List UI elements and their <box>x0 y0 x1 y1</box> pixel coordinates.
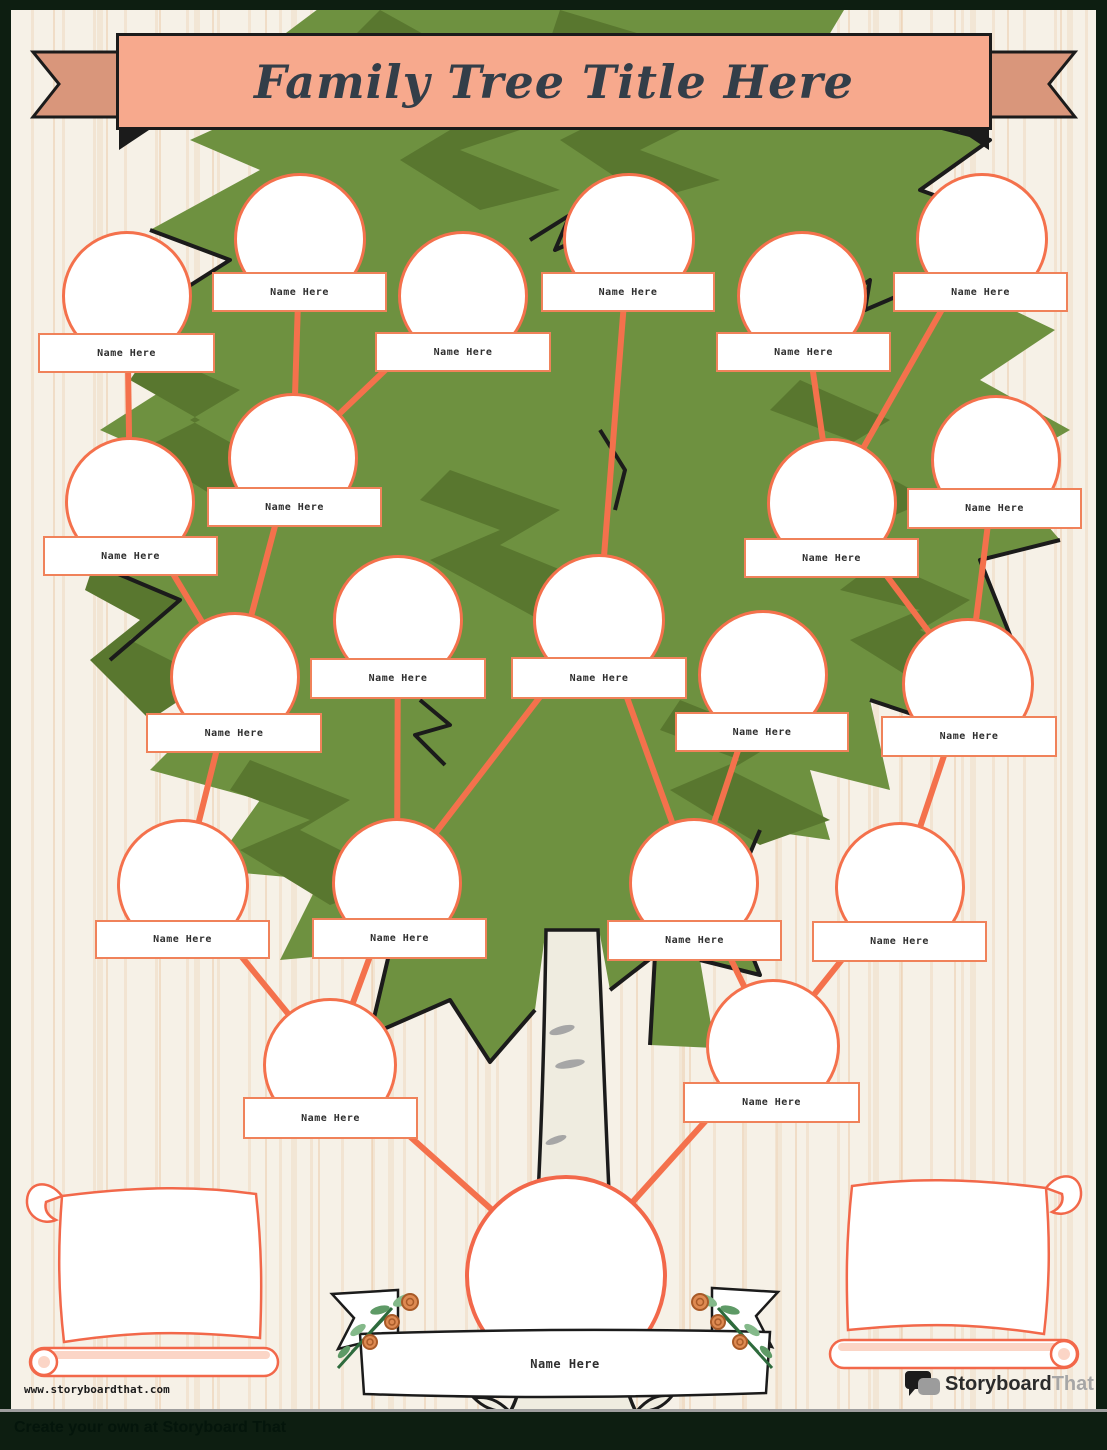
root-member-name-label[interactable]: Name Here <box>380 1346 750 1382</box>
storyboardthat-logo: StoryboardThat <box>905 1369 1094 1399</box>
frame-right <box>1096 0 1107 1412</box>
speech-bubbles-icon <box>905 1369 941 1399</box>
frame-left <box>0 0 11 1412</box>
logo-text-secondary: That <box>1052 1373 1094 1395</box>
banner-tail-right <box>989 52 1075 117</box>
root-name-ribbon <box>0 0 1107 1450</box>
title-banner[interactable]: Family Tree Title Here <box>116 33 992 130</box>
page-title: Family Tree Title Here <box>254 55 854 109</box>
footer-bar: Create your own at Storyboard That <box>0 1412 1107 1450</box>
family-tree-template-page: Name HereName HereName HereName HereName… <box>0 0 1107 1450</box>
frame-top <box>0 0 1107 10</box>
storyboardthat-url: www.storyboardthat.com <box>24 1383 170 1396</box>
banner-tail-left <box>33 52 119 117</box>
watermark-text: Create your own at Storyboard That <box>14 1419 286 1437</box>
logo-text-primary: Storyboard <box>945 1373 1052 1395</box>
